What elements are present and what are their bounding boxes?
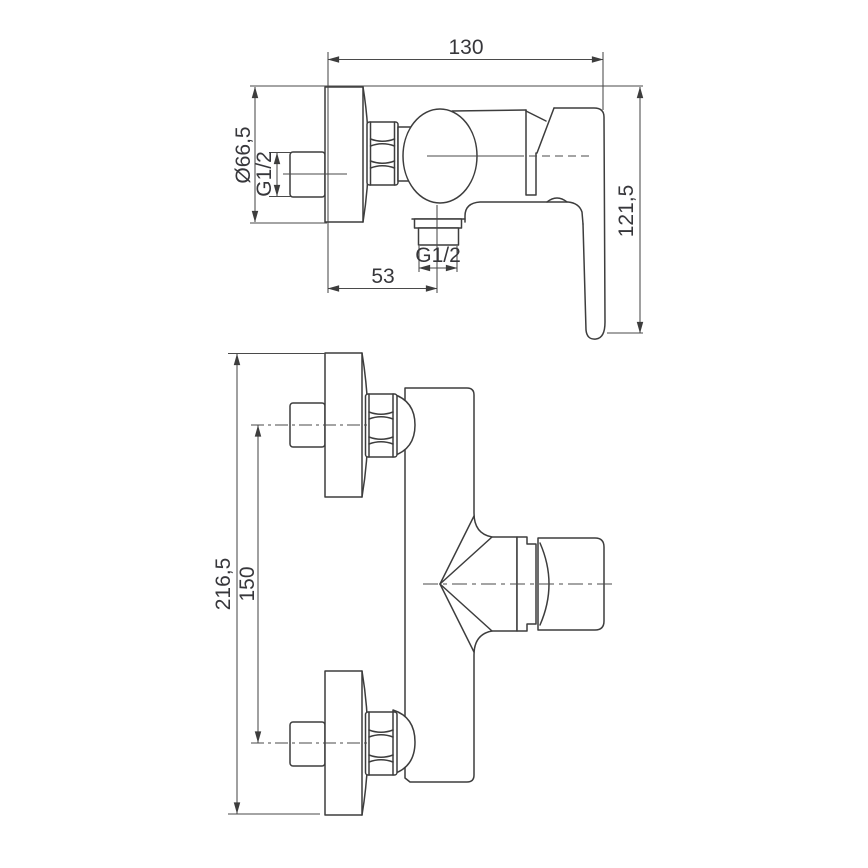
dim-outlet-thread-label: G1/2 xyxy=(415,244,461,267)
front-body xyxy=(405,388,517,782)
dim-inlet-thread-label: G1/2 xyxy=(253,151,276,197)
side-lever-grip xyxy=(554,108,605,339)
technical-drawing-canvas: 130 Ø66,5 G1/2 G1/2 53 121,5 xyxy=(0,0,868,868)
dim-overall-height-label: 216,5 xyxy=(212,558,235,611)
side-outlet xyxy=(415,219,462,245)
drawing-page: 130 Ø66,5 G1/2 G1/2 53 121,5 xyxy=(0,0,868,868)
front-view xyxy=(251,353,612,815)
front-lower-stub xyxy=(290,722,325,766)
dim-width-label: 130 xyxy=(448,36,483,59)
front-lower-nut xyxy=(366,712,398,775)
side-union-nut xyxy=(367,122,398,185)
dim-height-label: 121,5 xyxy=(615,185,638,238)
side-wall-flange xyxy=(325,87,363,222)
dim-outlet-offset-label: 53 xyxy=(371,265,394,288)
dim-flange-diameter-label: Ø66,5 xyxy=(232,126,255,183)
side-view xyxy=(283,87,605,339)
side-bottom-skirt xyxy=(465,202,583,224)
front-upper-nut xyxy=(366,394,398,457)
dim-centers-label: 150 xyxy=(236,566,259,601)
